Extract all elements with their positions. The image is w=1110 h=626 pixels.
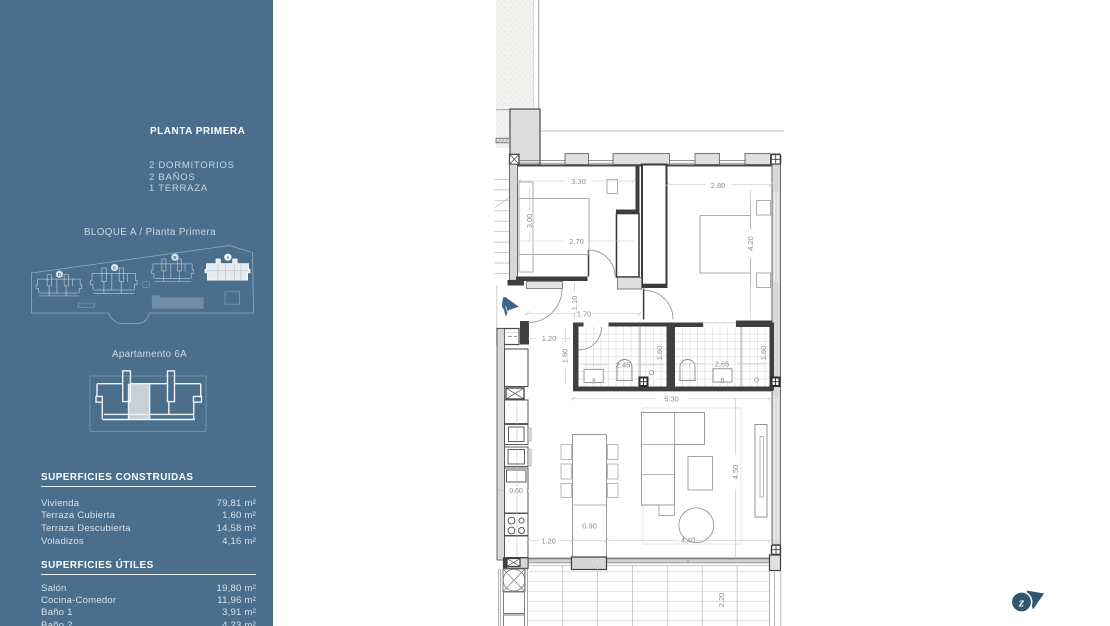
svg-text:2.70: 2.70 <box>569 237 584 246</box>
svg-text:5.30: 5.30 <box>664 395 679 404</box>
svg-text:0.60: 0.60 <box>509 488 523 495</box>
svg-text:1.60: 1.60 <box>655 346 664 361</box>
svg-text:z: z <box>1018 595 1025 610</box>
svg-text:4.50: 4.50 <box>731 465 740 480</box>
svg-text:4.40: 4.40 <box>681 536 696 545</box>
svg-text:1.70: 1.70 <box>577 309 592 318</box>
svg-text:B: B <box>173 255 176 260</box>
svg-text:1.60: 1.60 <box>759 346 768 361</box>
svg-text:2.65: 2.65 <box>715 360 730 369</box>
svg-text:0.90: 0.90 <box>582 522 597 531</box>
svg-text:2.80: 2.80 <box>711 181 726 190</box>
svg-text:1.20: 1.20 <box>541 537 556 546</box>
svg-text:D: D <box>58 272 61 277</box>
svg-text:1.80: 1.80 <box>561 349 570 364</box>
svg-text:3.30: 3.30 <box>571 177 586 186</box>
svg-text:1.10: 1.10 <box>570 296 579 311</box>
svg-text:2.45: 2.45 <box>616 361 631 370</box>
svg-text:1.20: 1.20 <box>542 334 557 343</box>
svg-text:4.20: 4.20 <box>746 236 755 251</box>
svg-text:3.00: 3.00 <box>525 214 534 229</box>
svg-text:2.20: 2.20 <box>717 593 726 608</box>
